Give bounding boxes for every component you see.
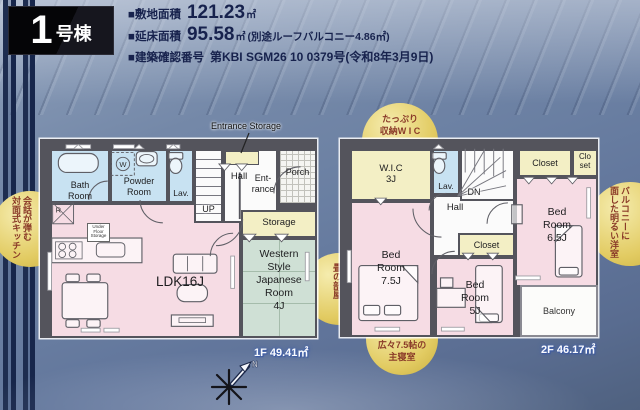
spec-label: ■建築確認番号 bbox=[128, 49, 204, 65]
closet-mid-label: Closet bbox=[458, 240, 515, 251]
floor2-plan: W.I.C 3J Lav. DN Hall Closet Clo set Clo… bbox=[340, 139, 598, 337]
western-room-label: Western Style Japanese Room 4J bbox=[243, 248, 315, 313]
spec-note: (別途ルーフバルコニー4.86㎡) bbox=[248, 29, 390, 44]
bed-5-label: Bed Room 5J bbox=[445, 279, 505, 318]
callout-master-text: 広々7.5帖の 主寝室 bbox=[366, 339, 438, 363]
callout-balcony-room-text: バルコニーに 面した明るい洋室 bbox=[600, 186, 630, 264]
bath-label: Bath Room bbox=[55, 180, 105, 201]
spec-confirmation-number: ■建築確認番号 第KBI SGM26 10 0379号(令和8年3月9日) bbox=[128, 48, 433, 65]
spec-site-area: ■敷地面積 121.23 ㎡ bbox=[128, 2, 433, 24]
compass-n-label: N bbox=[252, 360, 258, 369]
unit-number: 1 bbox=[30, 7, 52, 53]
porch-label: Porch bbox=[280, 167, 315, 178]
unit-suffix: 号棟 bbox=[56, 25, 92, 43]
callout-wic-text: たっぷり 収納W I C bbox=[362, 113, 438, 137]
wic-label: W.I.C 3J bbox=[352, 163, 430, 185]
dn-label: DN bbox=[462, 187, 486, 198]
spec-list: ■敷地面積 121.23 ㎡ ■延床面積 95.58 ㎡ (別途ルーフバルコニー… bbox=[128, 2, 433, 65]
storage-label: Storage bbox=[241, 217, 317, 228]
floor2-area-label: 2F 46.17㎡ bbox=[541, 341, 595, 357]
entrance-storage-label: Entrance Storage bbox=[211, 121, 281, 131]
compass-north-arrow: N bbox=[232, 360, 258, 384]
bed-75-label: Bed Room 7.5J bbox=[360, 249, 422, 288]
entrance-label: Ent- rance bbox=[249, 173, 277, 194]
ldk-label: LDK16J bbox=[125, 274, 235, 290]
spec-floor-area: ■延床面積 95.58 ㎡ (別途ルーフバルコニー4.86㎡) bbox=[128, 24, 433, 46]
hall-label-2f: Hall bbox=[440, 202, 470, 213]
lav-label-2f: Lav. bbox=[432, 181, 460, 191]
callout-kitchen-text: 会話が弾む 対面式キッチン bbox=[0, 196, 32, 262]
spec-unit: ㎡ bbox=[236, 28, 246, 43]
spec-label: ■敷地面積 bbox=[128, 6, 181, 22]
compass: N bbox=[203, 355, 263, 409]
floor-plan-flyer: { "header": { "unit_number": "1", "unit_… bbox=[0, 0, 640, 410]
spec-value: 95.58 bbox=[187, 24, 235, 46]
floor1-plan: W R bbox=[40, 139, 317, 338]
room-ldk bbox=[50, 203, 241, 338]
spec-unit: ㎡ bbox=[246, 6, 256, 21]
bed-65-label: Bed Room 6.5J bbox=[533, 206, 581, 245]
spec-value: 121.23 bbox=[187, 2, 245, 24]
spec-label: ■延床面積 bbox=[128, 28, 181, 44]
closet-small-label: Clo set bbox=[572, 152, 598, 171]
closet-top-label: Closet bbox=[518, 158, 572, 169]
under-floor-storage-label: Under Floor Storage bbox=[87, 223, 110, 242]
lav-label-1f: Lav. bbox=[168, 188, 194, 198]
powder-label: Powder Room bbox=[113, 176, 165, 197]
balcony-label: Balcony bbox=[520, 306, 598, 317]
unit-number-box: 1 号棟 bbox=[8, 6, 114, 55]
spec-value: 第KBI SGM26 10 0379号(令和8年3月9日) bbox=[210, 48, 433, 65]
entrance-storage-leader bbox=[236, 132, 254, 156]
up-label: UP bbox=[195, 204, 222, 215]
